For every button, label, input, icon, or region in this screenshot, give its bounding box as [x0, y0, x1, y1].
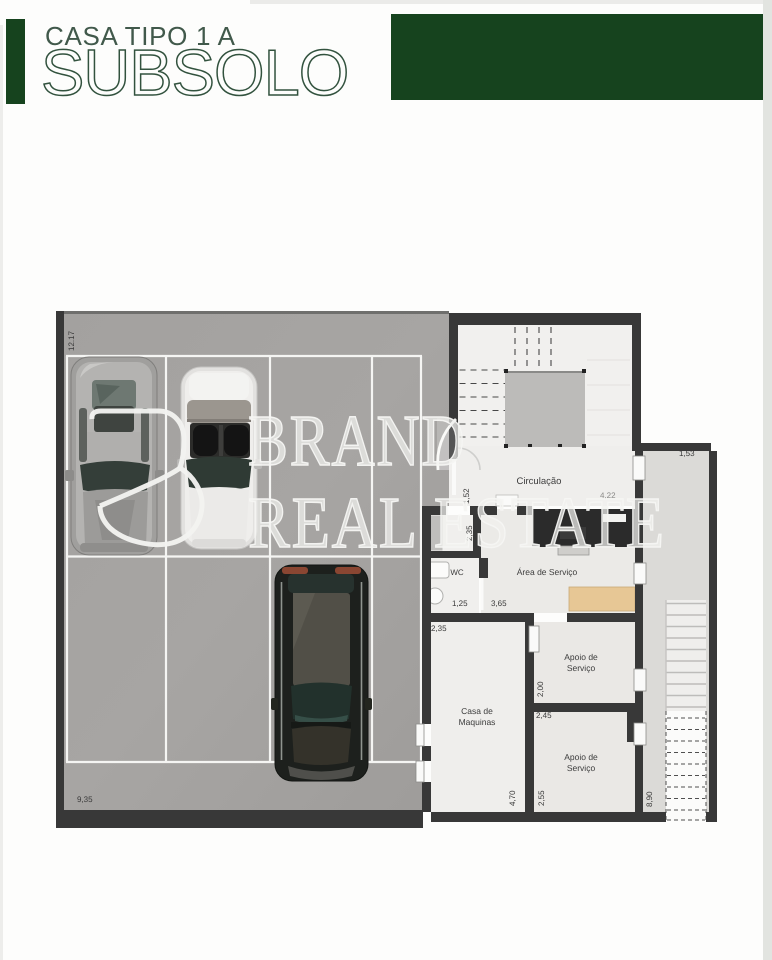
svg-text:Casa de: Casa de — [461, 706, 493, 716]
svg-text:Serviço: Serviço — [567, 663, 596, 673]
svg-text:WC: WC — [450, 568, 464, 577]
svg-text:12.17: 12.17 — [67, 330, 76, 351]
svg-text:Maquinas: Maquinas — [459, 717, 496, 727]
svg-text:1,53: 1,53 — [679, 449, 695, 458]
svg-text:Serviço: Serviço — [567, 763, 596, 773]
svg-text:Apoio de: Apoio de — [564, 752, 598, 762]
svg-text:2,35: 2,35 — [431, 624, 447, 633]
svg-text:2,45: 2,45 — [536, 711, 552, 720]
svg-text:2,00: 2,00 — [536, 681, 545, 697]
svg-text:9,35: 9,35 — [77, 795, 93, 804]
svg-text:4,70: 4,70 — [508, 790, 517, 806]
svg-text:8,90: 8,90 — [645, 791, 654, 807]
svg-text:Área de Serviço: Área de Serviço — [517, 567, 578, 577]
svg-text:3,65: 3,65 — [491, 599, 507, 608]
svg-text:1,25: 1,25 — [452, 599, 468, 608]
svg-text:2,55: 2,55 — [537, 790, 546, 806]
svg-text:Apoio de: Apoio de — [564, 652, 598, 662]
